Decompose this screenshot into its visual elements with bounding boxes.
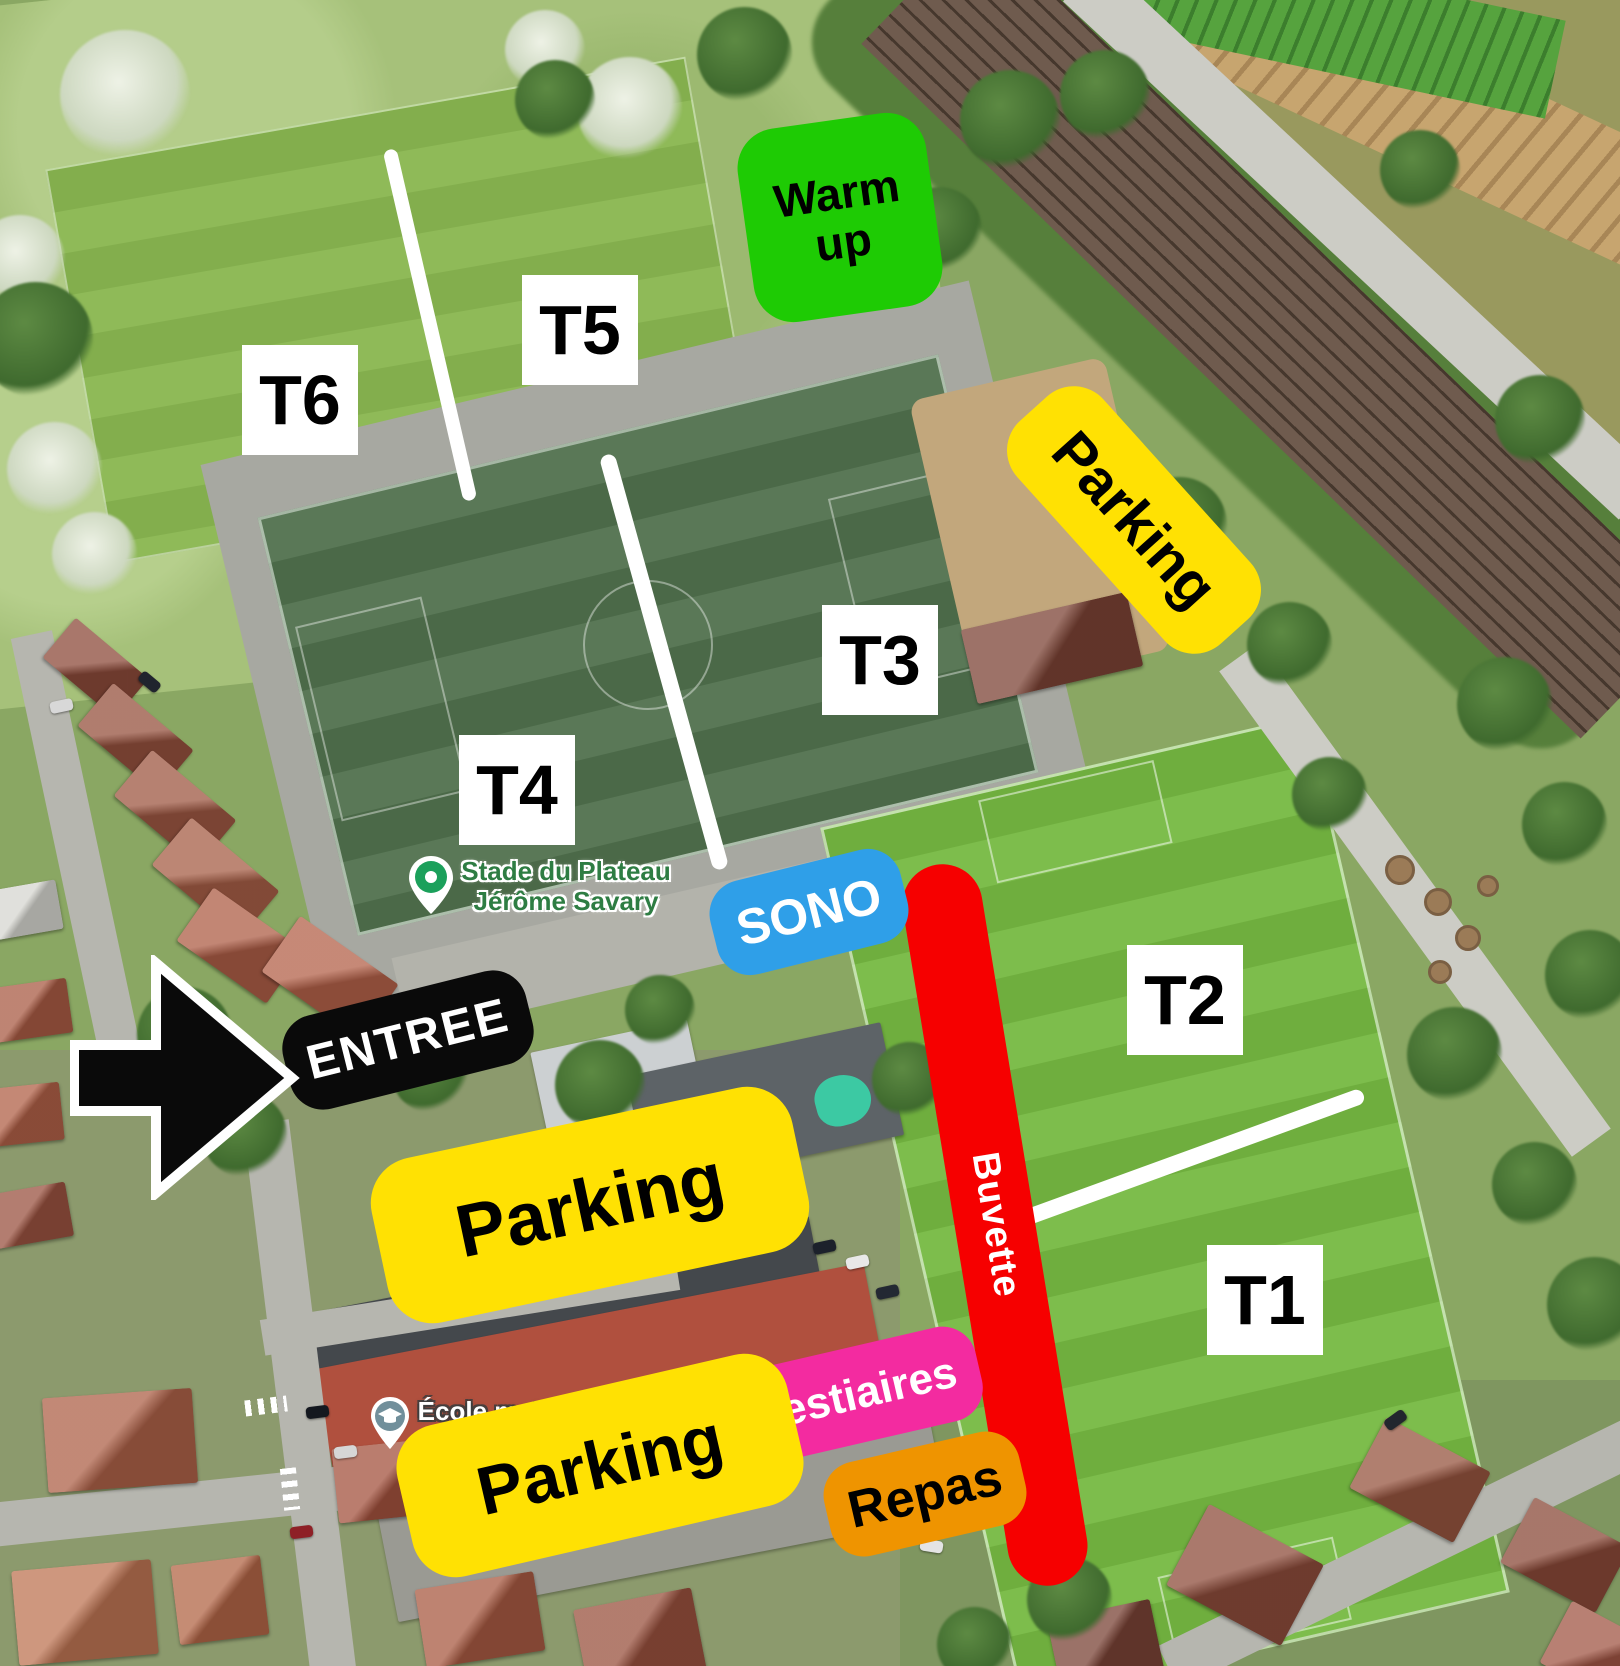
house-roof (0, 978, 73, 1044)
hay-bale (1428, 960, 1452, 984)
venue-label: Stade du Plateau Jérôme Savary (416, 856, 716, 916)
blossom-tree (60, 30, 190, 160)
hay-bale (1424, 888, 1452, 916)
blossom-tree (7, 422, 102, 517)
tree (1492, 1142, 1577, 1227)
field-label-t5: T5 (522, 275, 638, 385)
house-roof (11, 1559, 159, 1666)
tree (625, 975, 695, 1045)
entrance-arrow-icon (70, 955, 300, 1200)
hay-bale (1385, 855, 1415, 885)
tree (1547, 1257, 1620, 1352)
blossom-tree (52, 512, 137, 597)
tree (1457, 657, 1552, 752)
field-label-t1: T1 (1207, 1245, 1323, 1355)
buvette-label: Buvette (963, 1150, 1026, 1301)
field-label-t2: T2 (1127, 945, 1243, 1055)
house-roof (0, 879, 64, 940)
field-label-t3: T3 (822, 605, 938, 715)
tree (960, 70, 1060, 170)
hay-bale (1455, 925, 1481, 951)
field-label-t6: T6 (242, 345, 358, 455)
venue-label-line2: Jérôme Savary (416, 886, 716, 916)
tree (515, 60, 595, 140)
zone-warmup: Warm up (732, 108, 947, 328)
tree (1495, 375, 1585, 465)
tree (1247, 602, 1332, 687)
tournament-site-map: Stade du Plateau Jérôme Savary École mat… (0, 0, 1620, 1666)
hay-bale (1477, 875, 1499, 897)
tree (1407, 1007, 1502, 1102)
venue-label-line1: Stade du Plateau (416, 856, 716, 886)
tree (1545, 930, 1620, 1020)
field-label-t4: T4 (459, 735, 575, 845)
tree (1060, 50, 1150, 140)
tree (1522, 782, 1607, 867)
tree (697, 7, 792, 102)
house-roof (170, 1555, 269, 1645)
house-roof (42, 1388, 198, 1493)
house-roof (0, 1082, 65, 1149)
tree (1380, 130, 1460, 210)
tree (1292, 757, 1367, 832)
